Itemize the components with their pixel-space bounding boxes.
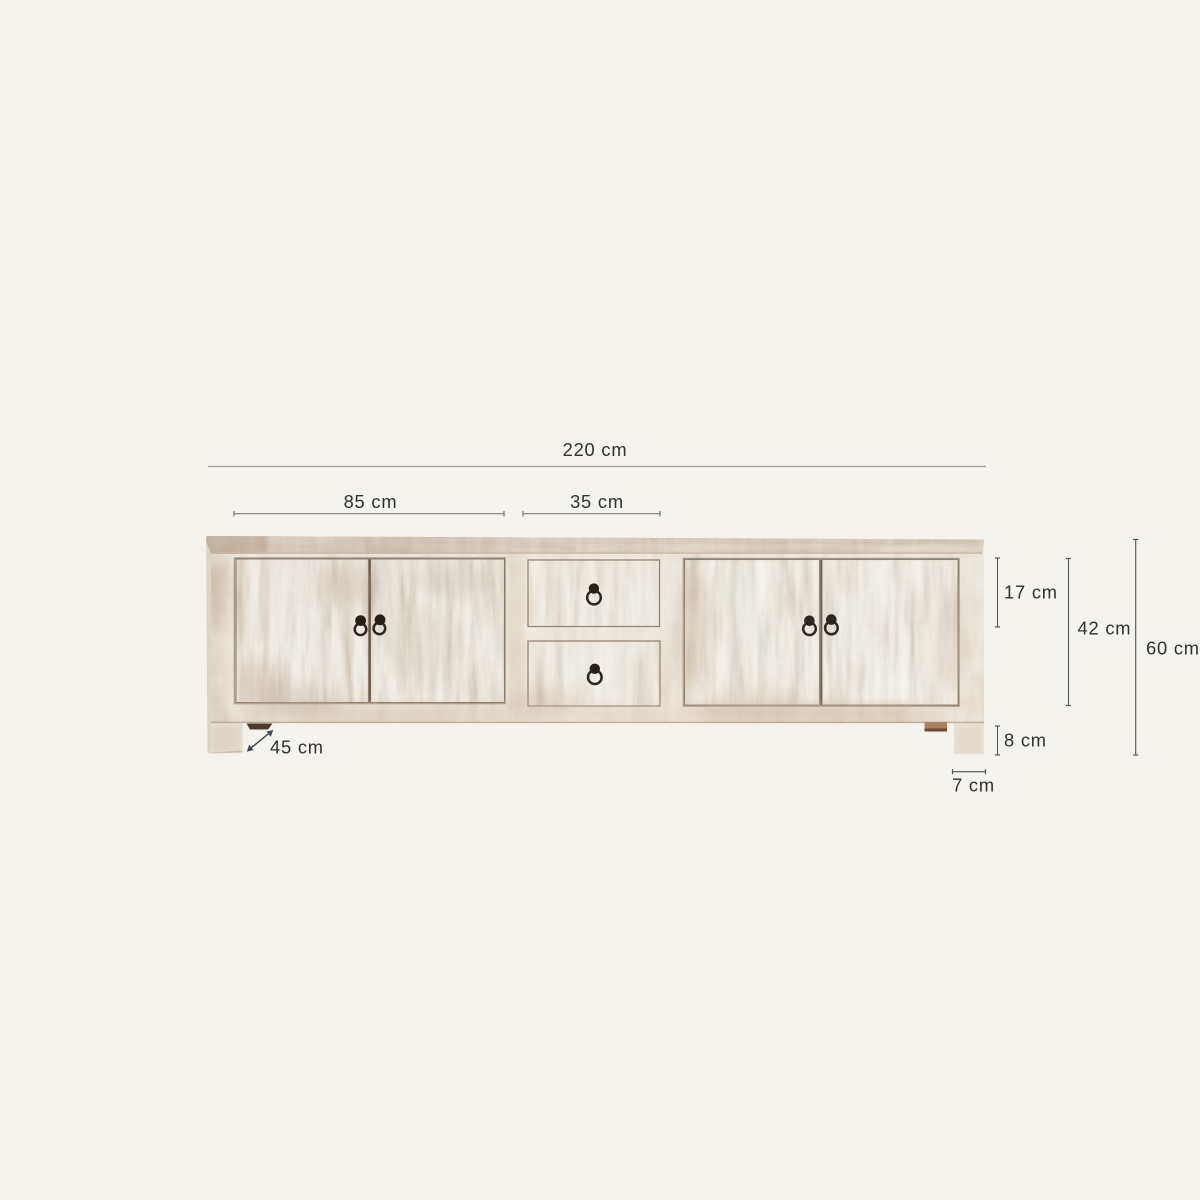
svg-text:45 cm: 45 cm	[270, 737, 324, 758]
svg-text:220 cm: 220 cm	[563, 439, 628, 460]
svg-text:42 cm: 42 cm	[1078, 618, 1132, 639]
svg-text:17 cm: 17 cm	[1004, 582, 1058, 603]
svg-text:7 cm: 7 cm	[952, 775, 995, 796]
svg-text:8 cm: 8 cm	[1004, 730, 1047, 751]
svg-text:85 cm: 85 cm	[344, 491, 398, 512]
svg-text:60 cm: 60 cm	[1146, 638, 1200, 659]
svg-text:35 cm: 35 cm	[570, 491, 624, 512]
